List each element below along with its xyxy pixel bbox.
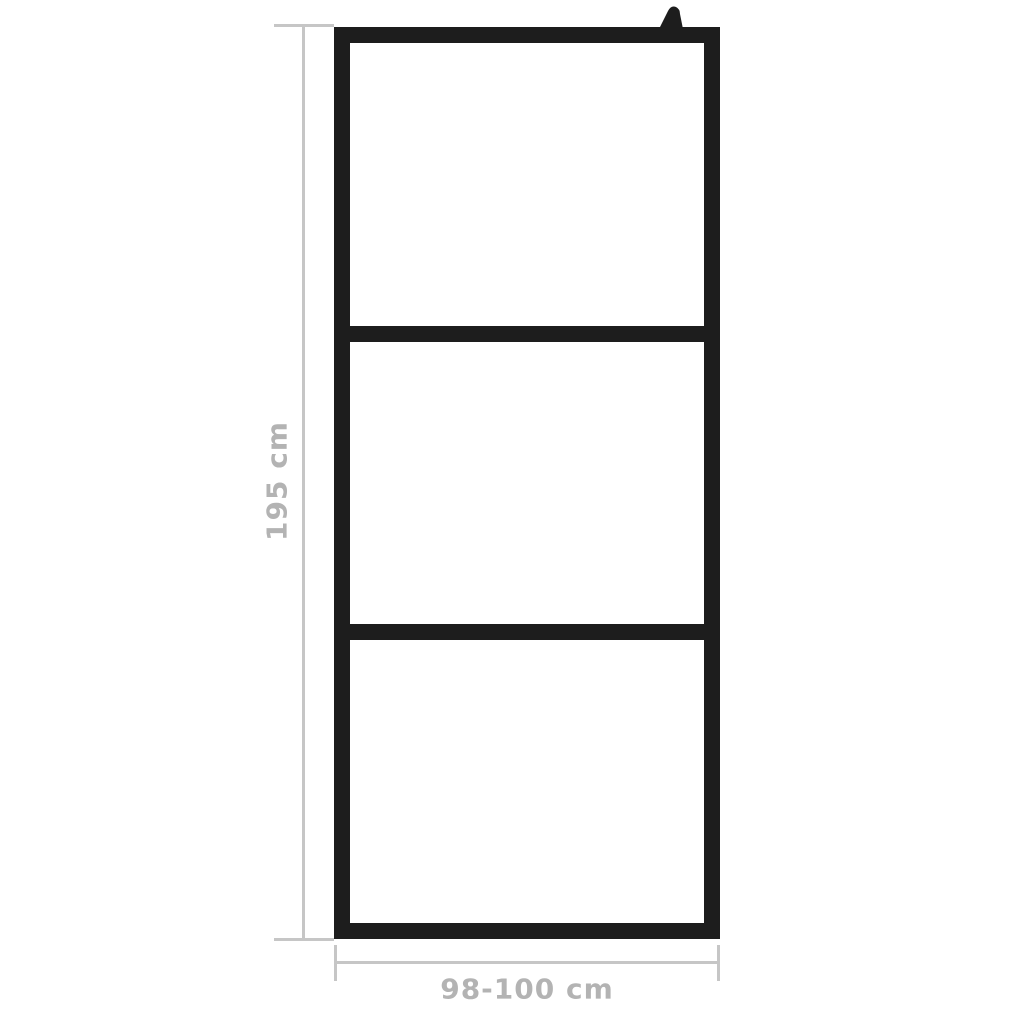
width-dimension-tick-right: [717, 945, 720, 981]
height-dimension-line: [302, 25, 305, 941]
frame-crossbar-upper: [350, 326, 704, 342]
frame-crossbar-lower: [350, 624, 704, 640]
height-dimension-label: 195 cm: [261, 421, 294, 541]
width-dimension-line: [334, 961, 720, 964]
glass-panel-bottom: [350, 640, 704, 923]
width-dimension-label: 98-100 cm: [440, 973, 614, 1006]
shower-screen-frame: [334, 27, 720, 939]
wall-mount-bracket-icon: [657, 5, 687, 29]
width-dimension-tick-left: [334, 945, 337, 981]
product-diagram: 195 cm 98-100 cm: [0, 0, 1024, 1024]
height-dimension-cap-bottom: [274, 938, 334, 941]
height-dimension-cap-top: [274, 24, 334, 27]
wall-mount-bracket: [657, 5, 687, 29]
glass-panel-middle: [350, 342, 704, 625]
glass-panel-top: [350, 43, 704, 326]
